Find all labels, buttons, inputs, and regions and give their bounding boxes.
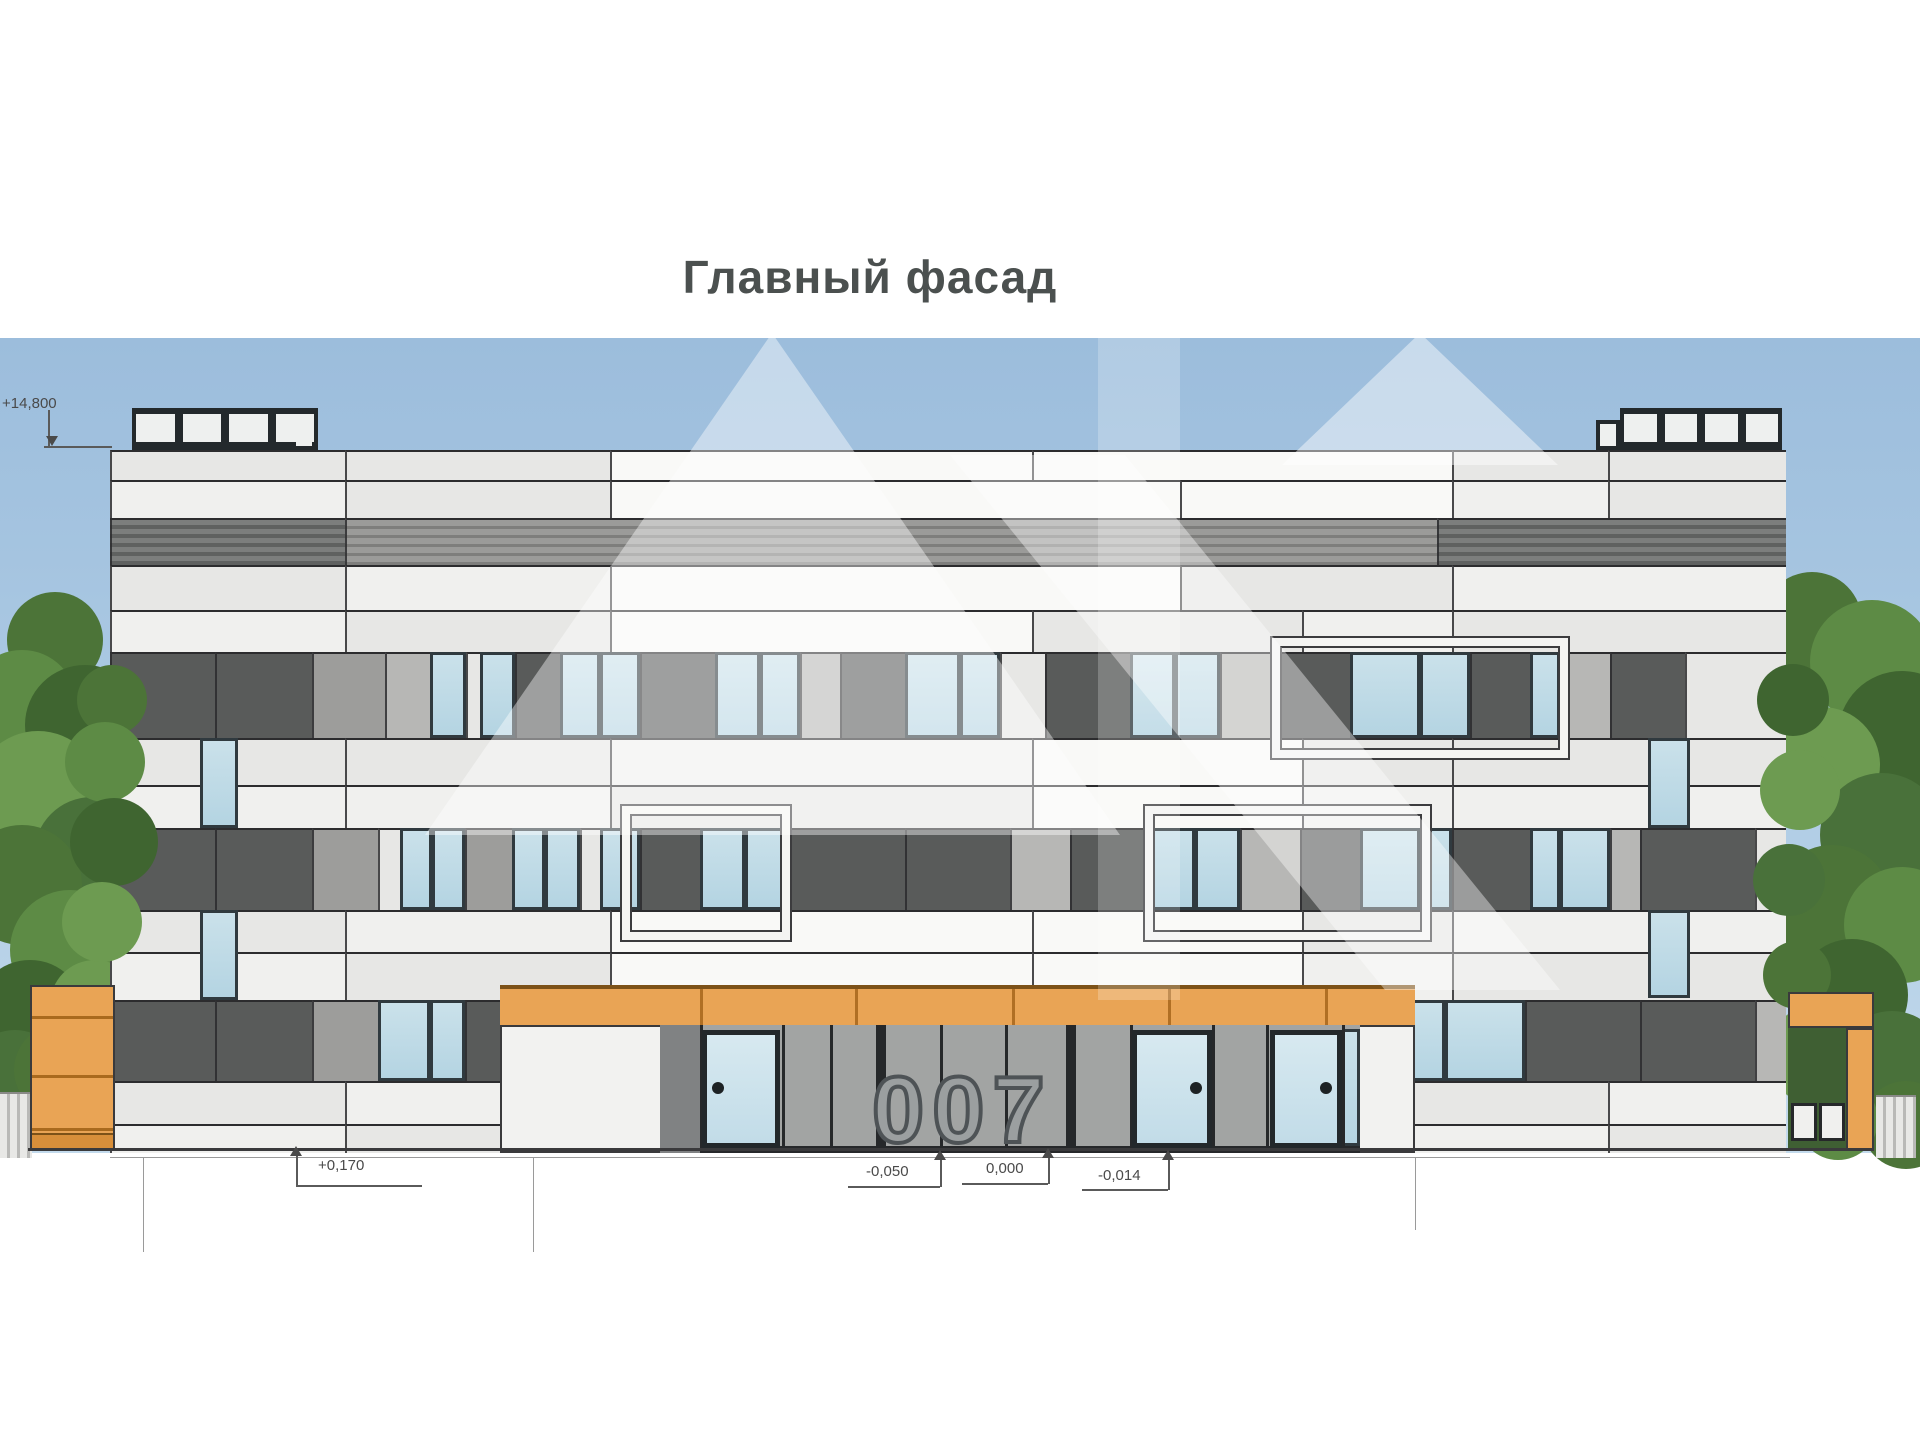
facade-panel (1452, 952, 1786, 1000)
facade-panel (345, 910, 610, 952)
facade-panel (110, 450, 345, 480)
storefront-mullion (1266, 1025, 1269, 1146)
storefront-mullion (830, 1025, 833, 1146)
side-wall-joint (32, 1016, 113, 1019)
roof-unit-cell (1746, 414, 1779, 442)
facade-panel (840, 652, 905, 738)
dimension-label-entry-zero: 0,000 (986, 1160, 1024, 1177)
facade-panel (215, 1000, 312, 1081)
tree-foreground-left (65, 722, 145, 802)
facade-panel (785, 828, 905, 910)
portal-fence-box (1819, 1103, 1845, 1141)
window-pane (905, 652, 960, 738)
window-pane (545, 828, 580, 910)
tall-window-pane (200, 738, 238, 828)
roof-unit-cell (1665, 414, 1698, 442)
roof-unit-cell (1624, 414, 1657, 442)
dimension-label-entry-right: -0,014 (1098, 1167, 1141, 1184)
guide-line (1415, 1158, 1416, 1230)
roof-unit-cell (136, 414, 175, 442)
tree-foreground-left (62, 882, 142, 962)
facade-panel (580, 828, 600, 910)
door-handle (712, 1082, 724, 1094)
louver-panel-dark (1437, 518, 1786, 565)
tree-foreground-right (1757, 664, 1829, 736)
window-pane (1445, 1000, 1525, 1081)
facade-panel (110, 1000, 215, 1081)
window-pane (960, 652, 1000, 738)
side-wall-dark-strip (32, 1133, 113, 1148)
facade-panel (1608, 1081, 1786, 1124)
facade-panel (1180, 480, 1452, 518)
canopy-joint (1012, 989, 1015, 1025)
roof-vent (1596, 420, 1620, 450)
facade-panel (1452, 785, 1786, 828)
storefront-dark-pane (660, 1025, 700, 1153)
facade-drawing-page: Главный фасад 007+14,800+0,170-0,0500,00… (0, 0, 1920, 1440)
protruding-window-frame (622, 806, 790, 940)
facade-panel (1032, 738, 1302, 785)
window-pane (1530, 828, 1560, 910)
dimension-leader-line (1048, 1156, 1050, 1184)
facade-panel (345, 480, 610, 518)
facade-panel (1180, 565, 1452, 610)
page-title: Главный фасад (460, 250, 1280, 304)
entrance-canopy (500, 985, 1415, 1025)
facade-panel (1220, 652, 1278, 738)
window-pane (715, 652, 760, 738)
facade-panel (110, 480, 345, 518)
dimension-arrow (934, 1150, 946, 1160)
facade-panel (465, 828, 512, 910)
door-handle (1320, 1082, 1332, 1094)
facade-panel (1032, 610, 1302, 652)
facade-panel (1000, 652, 1045, 738)
window-pane (512, 828, 545, 910)
facade-panel (1525, 1000, 1640, 1081)
roof-unit-cell (229, 414, 268, 442)
side-wall-left (30, 985, 115, 1148)
canopy-joint (1325, 989, 1328, 1025)
ground-line (28, 1148, 1874, 1151)
storefront-mullion (782, 1025, 785, 1146)
window-pane (560, 652, 600, 738)
facade-panel (312, 828, 378, 910)
dimension-leader-line (1082, 1189, 1168, 1191)
facade-panel (215, 652, 312, 738)
dimension-leader-line (940, 1158, 942, 1187)
louver-panel (345, 518, 1437, 565)
facade-panel (1452, 565, 1786, 610)
side-wall-right-post (1846, 1028, 1874, 1150)
dimension-leader-line (44, 446, 112, 448)
facade-panel (1610, 652, 1685, 738)
facade-panel (610, 565, 1180, 610)
tree-foreground-left (70, 798, 158, 886)
tall-window-pane (1648, 910, 1690, 998)
dimension-label-entry-left: -0,050 (866, 1163, 909, 1180)
facade-panel (1755, 1000, 1786, 1081)
facade-panel (345, 785, 610, 828)
facade-panel (345, 738, 610, 785)
protruding-window-frame (1272, 638, 1568, 758)
storefront-mullion (1066, 1025, 1076, 1146)
dimension-leader-line (848, 1186, 940, 1188)
roof-unit-cell (183, 414, 222, 442)
facade-panel (800, 652, 840, 738)
facade-panel (515, 652, 560, 738)
storefront-mullion (1342, 1025, 1345, 1146)
portal-fence-box (1791, 1103, 1817, 1141)
window-pane (378, 1000, 430, 1081)
dimension-arrow (1162, 1150, 1174, 1160)
facade-panel (110, 610, 345, 652)
facade-panel (1010, 828, 1070, 910)
dimension-leader-line (296, 1185, 422, 1187)
dimension-arrow (1042, 1148, 1054, 1158)
facade-panel (1640, 1000, 1755, 1081)
door-handle (1190, 1082, 1202, 1094)
facade-panel (345, 1081, 500, 1124)
window-pane (432, 828, 465, 910)
facade-panel (1045, 652, 1130, 738)
side-wall-right-top (1788, 992, 1874, 1028)
dimension-label-base-left: +0,170 (318, 1157, 364, 1174)
facade-panel (1070, 828, 1150, 910)
facade-panel (1608, 450, 1786, 480)
roof-unit-cell (276, 414, 315, 442)
storefront-mullion (1212, 1025, 1215, 1146)
louver-panel-dark (110, 518, 345, 565)
dimension-leader-line (1168, 1158, 1170, 1190)
facade-panel (1452, 480, 1608, 518)
tall-window-pane (1648, 738, 1690, 828)
picket-fence (1876, 1095, 1916, 1158)
facade-panel (610, 450, 1032, 480)
window-pane (600, 652, 640, 738)
facade-panel (1452, 450, 1608, 480)
guide-line (143, 1158, 144, 1252)
canopy-joint (1168, 989, 1171, 1025)
dimension-arrow (290, 1146, 302, 1156)
dimension-arrow (46, 436, 58, 446)
tall-window-pane (200, 910, 238, 1000)
facade-panel (465, 1000, 500, 1081)
dimension-leader-line (296, 1152, 298, 1186)
window-pane (1410, 1000, 1445, 1081)
facade-panel (1640, 828, 1755, 910)
window-pane (430, 652, 466, 738)
guide-line (533, 1158, 534, 1252)
facade-panel (610, 738, 1032, 785)
facade-panel (1608, 480, 1786, 518)
facade-panel (1032, 450, 1452, 480)
entrance-flank-wall (1358, 1025, 1415, 1153)
window-pane (400, 828, 432, 910)
facade-panel (378, 828, 400, 910)
tree-foreground-right (1753, 844, 1825, 916)
facade-panel (385, 652, 430, 738)
facade-panel (345, 450, 610, 480)
side-wall-joint (32, 1128, 113, 1131)
facade-panel (640, 652, 715, 738)
facade-panel (110, 1081, 345, 1124)
facade-panel (345, 565, 610, 610)
window-pane (760, 652, 800, 738)
window-pane (430, 1000, 465, 1081)
facade-panel (905, 828, 1010, 910)
side-wall-joint (32, 1075, 113, 1078)
entrance-flank-wall (500, 1025, 662, 1153)
facade-panel (110, 565, 345, 610)
window-pane (480, 652, 515, 738)
facade-panel (610, 480, 1180, 518)
facade-panel (215, 828, 312, 910)
facade-panel (312, 1000, 378, 1081)
facade-panel (1452, 910, 1786, 952)
facade-panel (610, 610, 1032, 652)
facade-panel (1610, 828, 1640, 910)
window-pane (1130, 652, 1175, 738)
window-pane (1560, 828, 1610, 910)
facade-panel (1410, 1081, 1608, 1124)
canopy-joint (855, 989, 858, 1025)
facade-panel (466, 652, 480, 738)
canopy-joint (700, 989, 703, 1025)
facade-panel (345, 610, 610, 652)
roof-unit-cell (1705, 414, 1738, 442)
protruding-window-frame (1145, 806, 1430, 940)
tree-foreground-right (1760, 750, 1840, 830)
facade-panel (1452, 828, 1530, 910)
window-pane (1175, 652, 1220, 738)
dimension-leader-line (962, 1183, 1048, 1185)
facade-panel (312, 652, 385, 738)
